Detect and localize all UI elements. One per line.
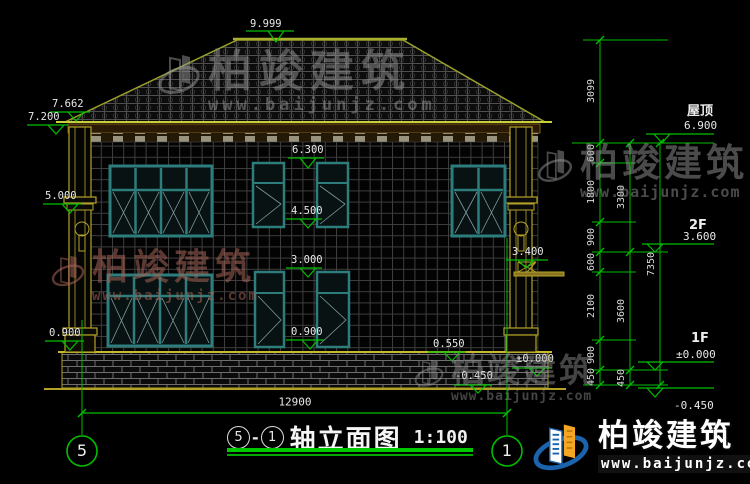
- rdim-3099: 3099: [587, 79, 597, 103]
- mark-canopy: 3.400: [512, 247, 544, 258]
- mark-left-mid: 5.000: [45, 191, 77, 202]
- level-roof-label: 屋顶: [687, 105, 713, 118]
- axis-bubble-left-number: 5: [77, 443, 87, 459]
- overall-dimension-line: [78, 409, 511, 417]
- window-1f-left: [108, 275, 212, 346]
- mark-eave: 7.200: [28, 112, 60, 123]
- window-2f-mid-right: [317, 163, 348, 227]
- rdim-450b: 450: [617, 369, 627, 387]
- brand-name: 柏竣建筑: [598, 421, 750, 452]
- mark-sill-2f: 4.500: [291, 206, 323, 217]
- level-1f-value: ±0.000: [676, 349, 716, 360]
- axis-bubble-right-number: 1: [502, 443, 512, 459]
- eave-fascia: [68, 124, 540, 142]
- level-1f-label: 1F: [691, 332, 709, 345]
- rdim-3300: 3300: [617, 185, 627, 209]
- cad-linework: [0, 0, 750, 484]
- mark-eave-outer: 7.662: [52, 99, 84, 110]
- window-2f-left: [110, 166, 212, 236]
- rdim-2100: 2100: [587, 294, 597, 318]
- mark-head-1f: 3.000: [291, 255, 323, 266]
- mark-ridge: 9.999: [250, 19, 282, 30]
- rdim-900b: 900: [587, 346, 597, 364]
- brand-logo-icon: [531, 416, 591, 478]
- rdim-1800: 1800: [587, 180, 597, 204]
- elevation-drawing-canvas: 9.999 7.662 7.200 5.000 6.300 4.500 3.00…: [0, 0, 750, 484]
- mark-sill-mid: 0.900: [291, 327, 323, 338]
- rdim-600b: 600: [587, 253, 597, 271]
- mark-eave-line: 6.300: [292, 145, 324, 156]
- hip-roof: [56, 39, 552, 122]
- title-separator: -: [252, 428, 259, 447]
- mark-step: 0.550: [433, 339, 465, 350]
- mark-sill-left: 0.900: [49, 328, 81, 339]
- title-axis-a: 5: [227, 426, 250, 449]
- level-ground-value: -0.450: [674, 400, 714, 411]
- rdim-3600: 3600: [617, 299, 627, 323]
- rdim-600a: 600: [587, 144, 597, 162]
- mark-ground: -0.450: [455, 371, 493, 382]
- brand-url: www.baijunjz.com: [598, 455, 750, 474]
- window-2f-right: [452, 166, 505, 236]
- level-2f-value: 3.600: [683, 231, 716, 242]
- level-roof-value: 6.900: [684, 120, 717, 131]
- overall-width-dim: 12900: [278, 397, 311, 408]
- brand-logo-block: 柏竣建筑 www.baijunjz.com: [531, 416, 750, 478]
- title-scale: 1:100: [414, 427, 468, 448]
- mark-floor-1f: ±0.000: [516, 354, 554, 365]
- title-underline-thin: [227, 454, 473, 456]
- title-underline-thick: [227, 448, 473, 452]
- rdim-900a: 900: [587, 228, 597, 246]
- window-1f-mid-left: [255, 272, 284, 347]
- window-2f-mid-left: [253, 163, 284, 227]
- rdim-450a: 450: [587, 368, 597, 386]
- title-axis-b: 1: [261, 426, 284, 449]
- rdim-7350: 7350: [647, 252, 657, 276]
